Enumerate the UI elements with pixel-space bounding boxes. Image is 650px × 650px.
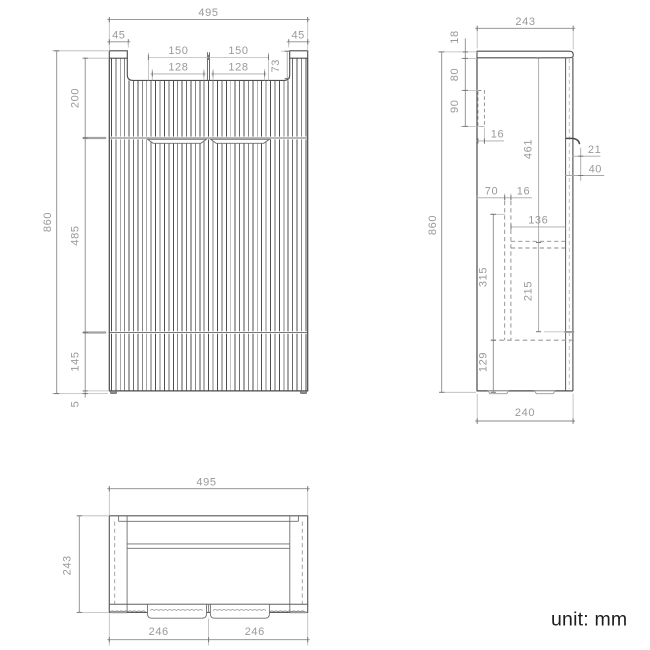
svg-text:5: 5: [70, 401, 82, 408]
svg-text:246: 246: [149, 626, 169, 638]
svg-text:243: 243: [61, 555, 73, 575]
svg-text:128: 128: [228, 61, 248, 73]
svg-text:128: 128: [168, 61, 188, 73]
svg-text:40: 40: [589, 163, 602, 175]
svg-text:73: 73: [270, 59, 282, 72]
svg-text:246: 246: [245, 626, 265, 638]
svg-text:495: 495: [198, 7, 218, 19]
svg-text:215: 215: [523, 281, 535, 301]
svg-text:45: 45: [112, 29, 125, 41]
svg-text:150: 150: [228, 45, 248, 57]
svg-text:70: 70: [485, 186, 498, 198]
svg-text:45: 45: [291, 29, 304, 41]
svg-text:243: 243: [515, 16, 535, 28]
svg-text:495: 495: [196, 476, 216, 488]
svg-text:485: 485: [70, 225, 82, 245]
svg-text:16: 16: [517, 186, 530, 198]
svg-text:21: 21: [588, 144, 601, 156]
svg-text:145: 145: [70, 351, 82, 371]
svg-text:129: 129: [477, 352, 489, 372]
svg-text:18: 18: [449, 30, 461, 43]
svg-text:200: 200: [70, 88, 82, 108]
svg-text:80: 80: [449, 68, 461, 81]
svg-text:136: 136: [528, 214, 548, 226]
svg-text:315: 315: [477, 267, 489, 287]
svg-text:16: 16: [491, 129, 504, 141]
svg-text:860: 860: [42, 212, 54, 232]
svg-text:150: 150: [168, 45, 188, 57]
svg-text:90: 90: [449, 100, 461, 113]
svg-text:461: 461: [523, 139, 535, 159]
svg-text:unit: mm: unit: mm: [551, 609, 627, 631]
svg-text:240: 240: [515, 407, 535, 419]
svg-text:860: 860: [427, 215, 439, 235]
